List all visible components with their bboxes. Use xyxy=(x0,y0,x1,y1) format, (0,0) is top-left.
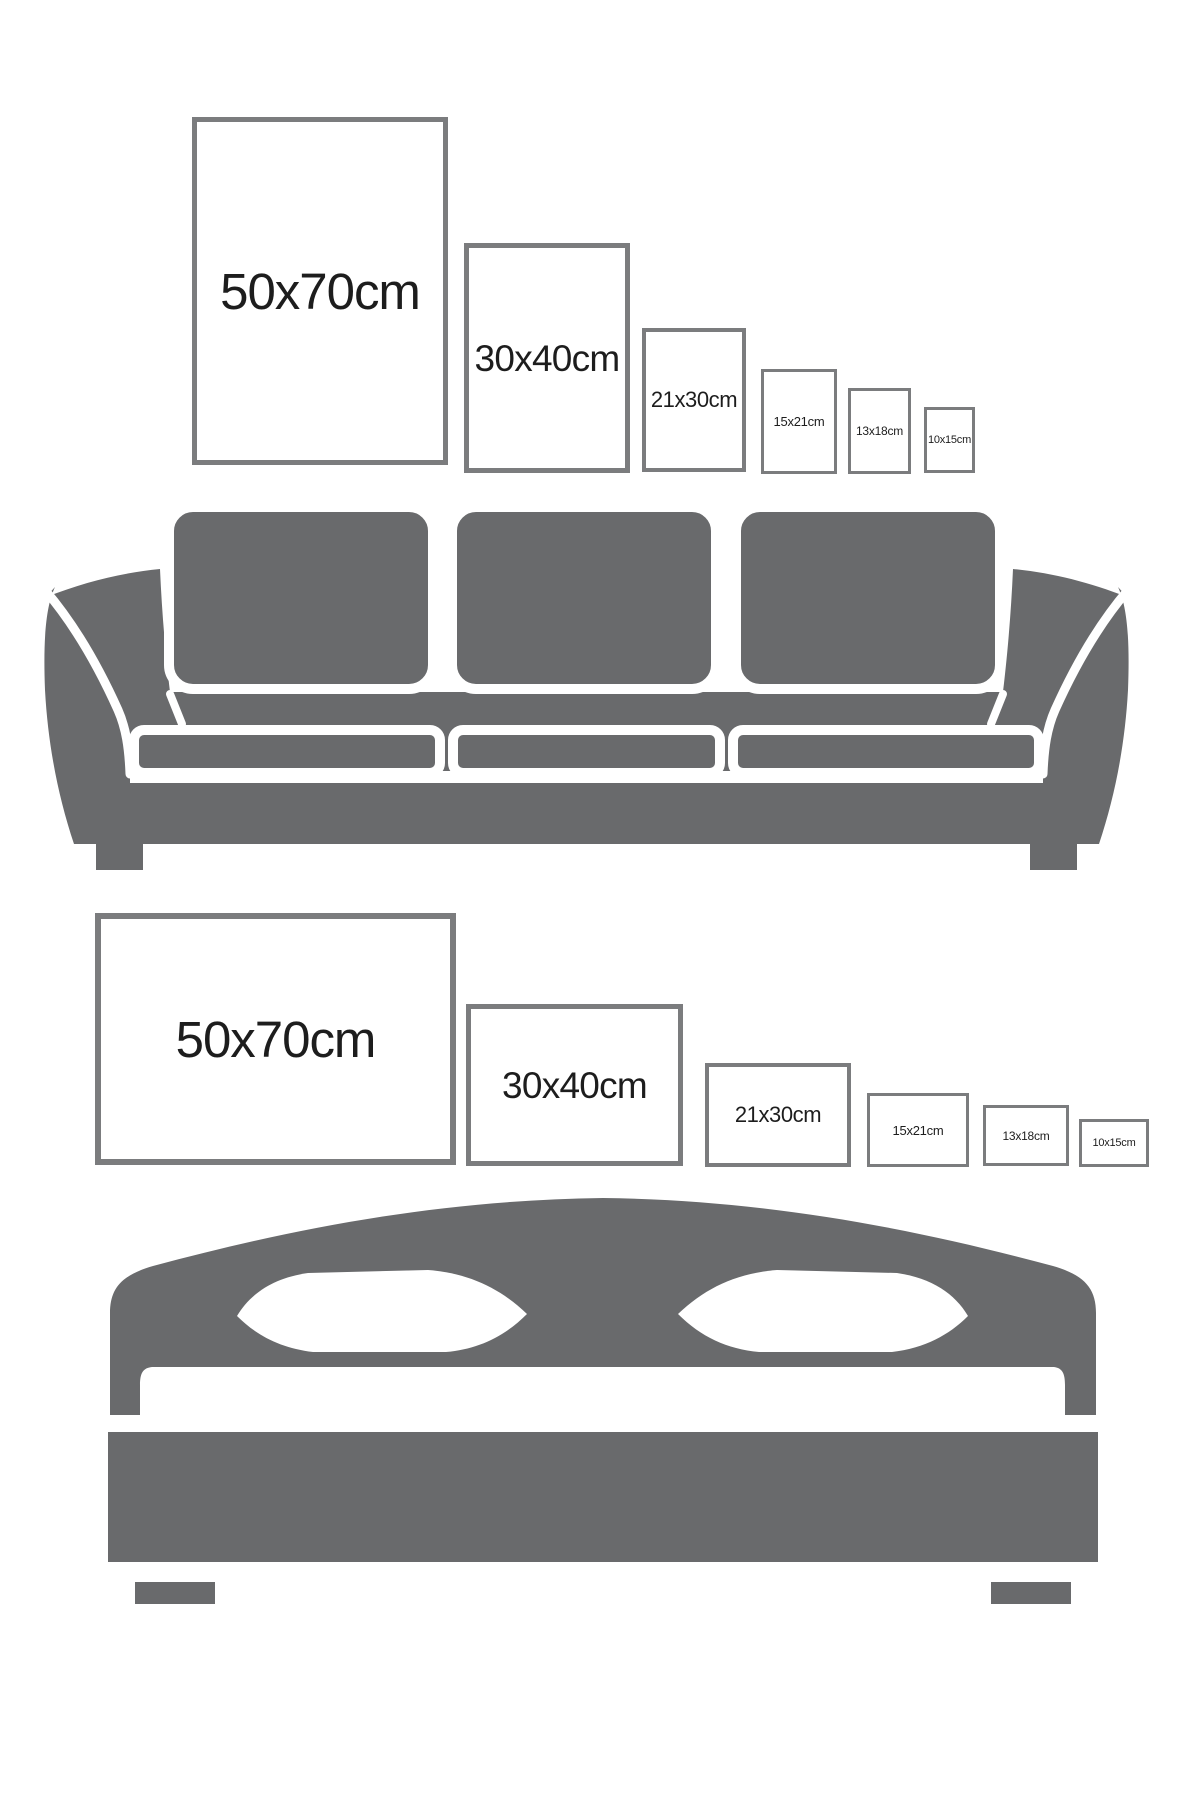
poster-size-guide: 50x70cm 30x40cm 21x30cm 15x21cm 13x18cm … xyxy=(0,0,1200,1800)
size-frame-15x21-landscape: 15x21cm xyxy=(867,1093,969,1167)
size-frame-50x70-landscape: 50x70cm xyxy=(95,913,456,1165)
size-frame-50x70-portrait: 50x70cm xyxy=(192,117,448,465)
size-frame-15x21-portrait: 15x21cm xyxy=(761,369,837,474)
sofa-seat-cushion-right xyxy=(733,730,1039,773)
size-frame-30x40-landscape: 30x40cm xyxy=(466,1004,683,1166)
size-frame-21x30-portrait: 21x30cm xyxy=(642,328,746,472)
sofa-back-cushion-right xyxy=(736,507,1000,689)
size-label-10x15: 10x15cm xyxy=(928,435,971,446)
size-frame-13x18-portrait: 13x18cm xyxy=(848,388,911,474)
bed-icon xyxy=(108,1198,1098,1608)
size-label-13x18: 13x18cm xyxy=(856,425,903,437)
size-label-50x70: 50x70cm xyxy=(220,266,420,317)
sofa-seat-cushion-left xyxy=(134,730,440,773)
size-label-10x15: 10x15cm xyxy=(1092,1138,1135,1149)
size-label-30x40: 30x40cm xyxy=(502,1067,647,1104)
bed-leg-left xyxy=(135,1582,215,1604)
size-label-50x70: 50x70cm xyxy=(176,1014,376,1065)
bed-leg-right xyxy=(991,1582,1071,1604)
size-label-21x30: 21x30cm xyxy=(735,1104,821,1126)
sofa-leg-right xyxy=(1030,844,1077,870)
size-frame-30x40-portrait: 30x40cm xyxy=(464,243,630,473)
sofa-leg-left xyxy=(96,844,143,870)
size-frame-10x15-portrait: 10x15cm xyxy=(924,407,975,473)
size-label-15x21: 15x21cm xyxy=(893,1124,944,1137)
size-frame-13x18-landscape: 13x18cm xyxy=(983,1105,1069,1166)
size-label-15x21: 15x21cm xyxy=(774,415,825,428)
size-frame-21x30-landscape: 21x30cm xyxy=(705,1063,851,1167)
size-label-21x30: 21x30cm xyxy=(651,389,737,411)
sofa-back-cushion-left xyxy=(169,507,433,689)
size-label-13x18: 13x18cm xyxy=(1002,1130,1049,1142)
size-label-30x40: 30x40cm xyxy=(475,340,620,377)
size-frame-10x15-landscape: 10x15cm xyxy=(1079,1119,1149,1167)
sofa-back-cushion-middle xyxy=(452,507,716,689)
sofa-seat-cushion-middle xyxy=(453,730,720,773)
bed-base xyxy=(108,1432,1098,1562)
sofa-icon xyxy=(40,500,1140,880)
